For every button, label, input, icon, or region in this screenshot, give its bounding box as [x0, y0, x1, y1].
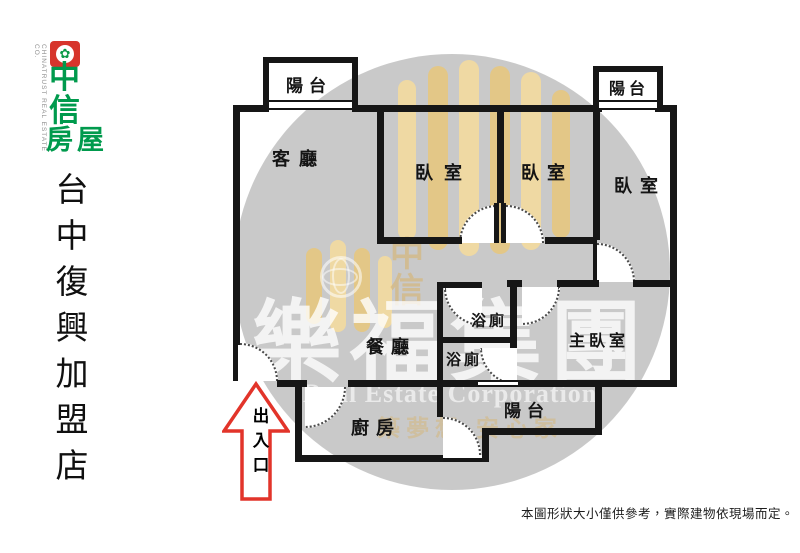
wall: [545, 237, 597, 244]
room-label-bathroom-2: 浴廁: [446, 349, 482, 370]
room-label-master-bedroom: 主臥室: [569, 327, 629, 351]
wall: [377, 112, 384, 243]
window: [599, 100, 657, 110]
wall: [633, 280, 677, 287]
wall: [263, 57, 358, 63]
wall: [295, 455, 443, 462]
wall: [593, 66, 663, 72]
sliding-door: [478, 380, 518, 387]
watermark-logo-char: 中: [390, 239, 424, 273]
room-label-bedroom-1: 臥室: [415, 159, 473, 185]
room-label-bedroom-3: 臥室: [614, 172, 666, 198]
room-label-balcony-bottom: 陽台: [504, 397, 550, 422]
wall: [263, 57, 269, 105]
wall: [557, 280, 599, 287]
brand-logo-char-2: 信: [49, 95, 80, 126]
entrance-door-panel: [233, 345, 238, 381]
store-name: 台中復興加盟店: [44, 172, 92, 502]
door-panel: [501, 203, 506, 243]
wall: [657, 66, 663, 105]
wall: [377, 237, 462, 244]
entrance-label: 出入口: [247, 407, 271, 481]
brand-logo-char-3: 房屋: [46, 127, 108, 154]
wall: [295, 380, 302, 462]
wall: [437, 387, 443, 417]
window: [269, 100, 352, 110]
wall: [593, 112, 600, 240]
wall: [233, 105, 269, 112]
door-panel: [593, 243, 597, 282]
room-label-kitchen: 廚房: [351, 414, 401, 440]
room-label-dining-room: 餐廳: [366, 333, 416, 359]
room-label-bedroom-2: 臥室: [521, 159, 573, 185]
room-label-balcony-top-right: 陽台: [609, 75, 649, 99]
wall: [497, 112, 504, 203]
wall: [437, 282, 443, 380]
wall: [655, 105, 677, 112]
wall: [352, 105, 602, 112]
wall: [595, 387, 602, 435]
room-label-bathroom-1: 浴廁: [471, 310, 507, 331]
wall: [437, 337, 517, 343]
disclaimer-text: 本圖形狀大小僅供參考，實際建物依現場而定。: [521, 503, 794, 522]
wall: [518, 380, 677, 387]
room-label-balcony-top-left: 陽台: [286, 72, 332, 97]
wall: [352, 57, 358, 105]
door-threshold: [443, 455, 482, 462]
brand-company-en: CHINATRUST REAL ESTATE CO.: [33, 44, 47, 162]
wall: [348, 380, 478, 387]
wall: [437, 282, 482, 288]
floorplan-flyer: 中 信 樂福集團 Real Estate Corporation 築夢想 安心家: [0, 0, 800, 553]
brand-logo-char-1: 中: [49, 62, 80, 93]
watermark-bar: [398, 80, 416, 240]
door-panel: [494, 203, 499, 243]
watermark-bar: [428, 66, 448, 250]
wall: [670, 112, 677, 387]
room-label-living-room: 客廳: [272, 145, 326, 171]
wall: [233, 112, 240, 345]
wall: [482, 428, 602, 435]
